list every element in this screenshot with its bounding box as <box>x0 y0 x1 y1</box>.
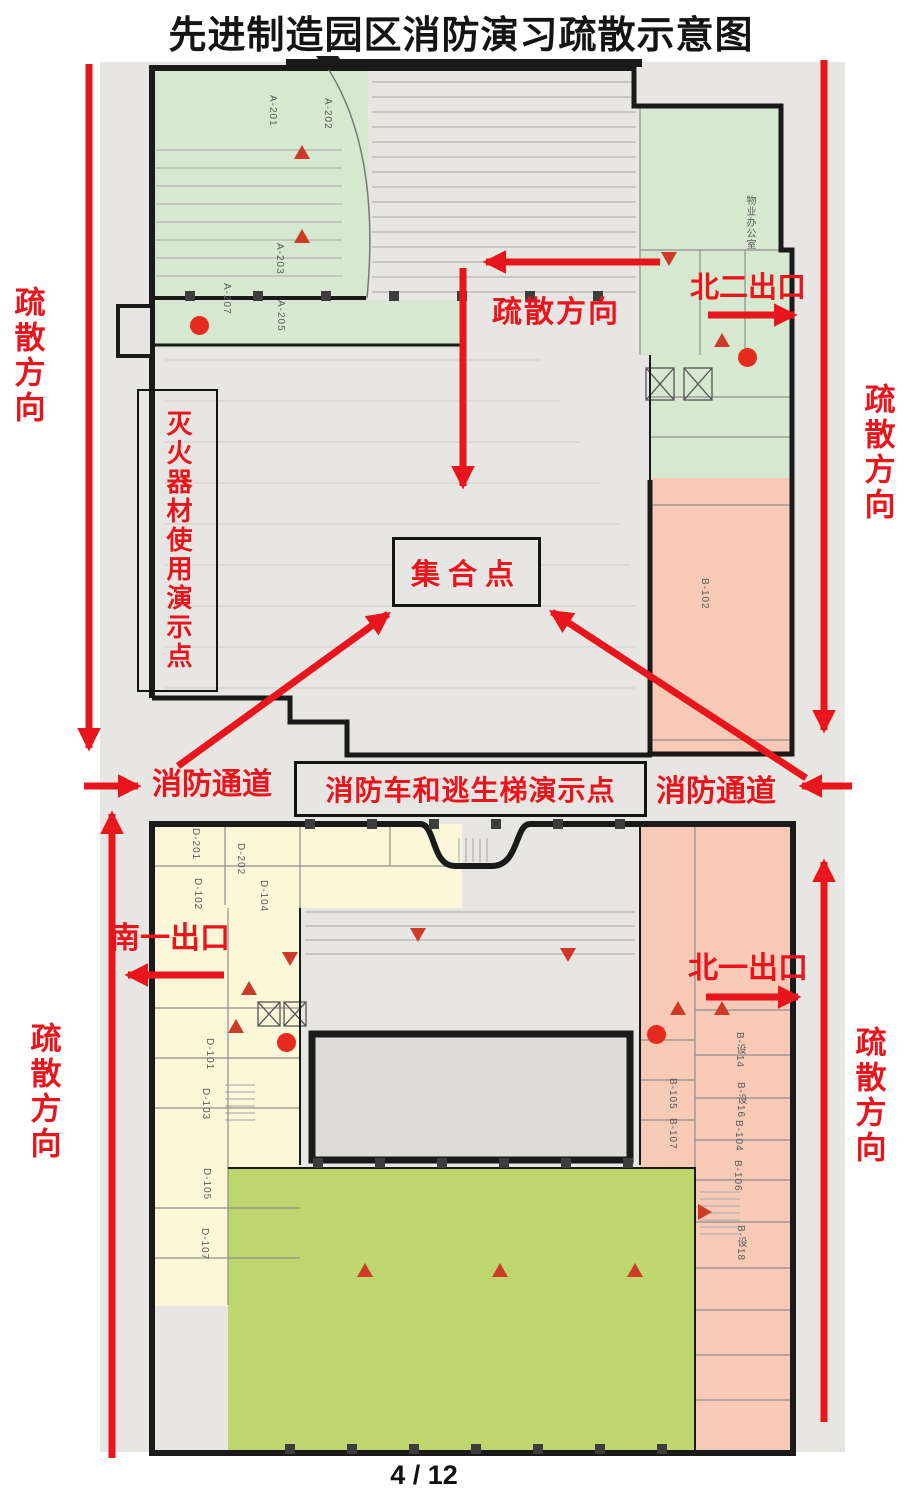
label-south-exit-1: 南一出口 <box>110 923 230 955</box>
floor-plan-drawing <box>0 0 922 1502</box>
page-title: 先进制造园区消防演习疏散示意图 <box>0 4 922 59</box>
extinguisher-demo-label: 灭火器材使用演示点 <box>159 410 196 671</box>
label-north-exit-1: 北一出口 <box>688 953 808 985</box>
label-evac-direction-center: 疏散方向 <box>492 297 620 329</box>
label-evac-direction-right-top: 疏散方向 <box>860 383 893 523</box>
label-fire-lane-right: 消防通道 <box>656 776 776 808</box>
assembly-point-box: 集合点 <box>392 537 541 607</box>
evacuation-diagram-page: A-201A-202A-203A-207A-205物业办公室B-102D-201… <box>0 0 922 1502</box>
extinguisher-demo-box: 灭火器材使用演示点 <box>137 389 218 692</box>
label-north-exit-2: 北二出口 <box>690 273 806 304</box>
label-evac-direction-left-top: 疏散方向 <box>10 286 43 426</box>
page-number: 4 / 12 <box>0 1460 848 1491</box>
label-fire-lane-left: 消防通道 <box>152 769 272 801</box>
fire-truck-demo-box: 消防车和逃生梯演示点 <box>294 761 647 817</box>
label-evac-direction-right-bottom: 疏散方向 <box>851 1026 884 1166</box>
label-evac-direction-left-bottom: 疏散方向 <box>26 1022 59 1162</box>
